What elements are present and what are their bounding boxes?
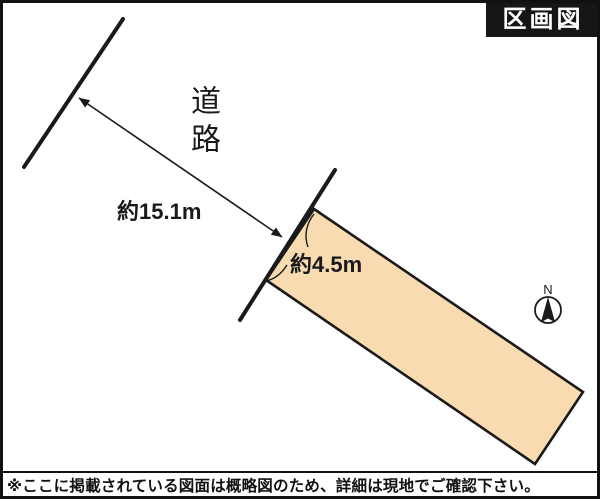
- disclaimer-text: ※ここに掲載されている図面は概略図のため、詳細は現地でご確認下さい。: [7, 474, 540, 496]
- north-label: N: [539, 282, 557, 297]
- disclaimer-strip: ※ここに掲載されている図面は概略図のため、詳細は現地でご確認下さい。: [3, 471, 597, 496]
- road-line-upper: [24, 19, 123, 167]
- plot-map-canvas: 区画図 道路 約15.1m 約4.5m N ※ここに掲載されている図面は概略図の…: [0, 0, 600, 499]
- title-box: 区画図: [486, 3, 600, 37]
- compass-icon: [535, 297, 561, 323]
- page-title: 区画図: [503, 8, 584, 32]
- frontage-label: 約4.5m: [290, 247, 362, 279]
- road-distance-label: 約15.1m: [117, 194, 201, 226]
- road-label: 道路: [187, 85, 217, 161]
